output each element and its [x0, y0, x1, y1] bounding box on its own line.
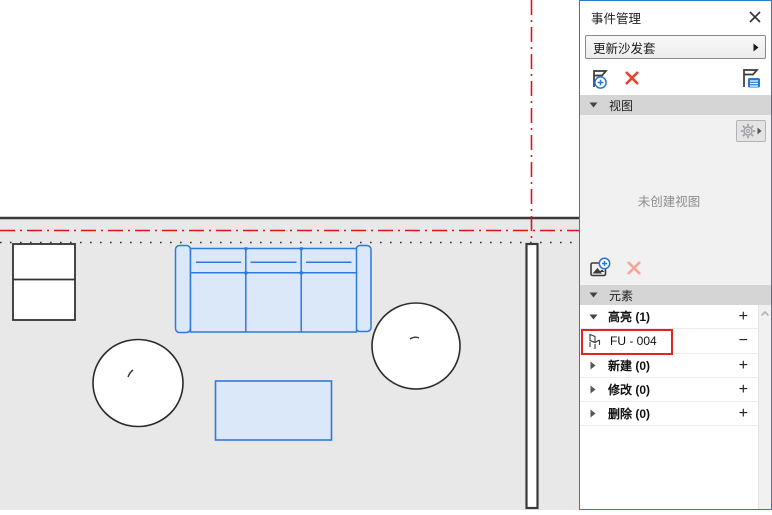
add-event-icon[interactable]: [589, 67, 611, 90]
gear-icon: [740, 123, 756, 139]
view-settings-button[interactable]: [736, 120, 766, 142]
expand-triangle-icon[interactable]: [586, 409, 600, 418]
group-row-modify[interactable]: 修改 (0) +: [580, 378, 758, 402]
close-icon[interactable]: [748, 10, 762, 24]
add-view-icon[interactable]: [589, 257, 613, 279]
element-section-header[interactable]: 元素: [580, 285, 771, 305]
event-details-icon[interactable]: [740, 67, 762, 90]
event-selector[interactable]: 更新沙发套: [585, 35, 766, 59]
flyout-arrow-icon: [757, 127, 762, 135]
group-label: 修改 (0): [608, 381, 739, 398]
chair-icon: [586, 333, 602, 350]
delete-view-icon[interactable]: [626, 260, 642, 276]
element-row-fu-004[interactable]: FU - 004 −: [580, 329, 758, 354]
delete-event-icon[interactable]: [624, 70, 640, 86]
right-wall[interactable]: [527, 244, 538, 508]
collapse-triangle-icon[interactable]: [586, 314, 600, 320]
view-section-label: 视图: [609, 97, 633, 114]
expand-triangle-icon[interactable]: [586, 385, 600, 394]
group-label: 删除 (0): [608, 405, 739, 422]
add-element-button[interactable]: +: [739, 406, 748, 422]
expand-triangle-icon[interactable]: [586, 361, 600, 370]
round-table-left[interactable]: [93, 340, 183, 427]
view-section-header[interactable]: 视图: [580, 95, 771, 115]
group-label: 新建 (0): [608, 357, 739, 374]
view-empty-text: 未创建视图: [580, 191, 758, 210]
exterior-area: [0, 0, 579, 219]
event-toolbar: [580, 61, 771, 95]
panel-title: 事件管理: [591, 8, 641, 27]
cabinet[interactable]: [13, 244, 75, 320]
add-element-button[interactable]: +: [739, 358, 748, 374]
collapse-triangle-icon: [589, 292, 598, 298]
add-element-button[interactable]: +: [739, 309, 748, 325]
element-section-label: 元素: [609, 287, 633, 304]
sofa-selected[interactable]: [176, 246, 372, 333]
dropdown-arrow-icon: [753, 43, 759, 52]
event-selector-value: 更新沙发套: [593, 38, 656, 57]
collapse-triangle-icon: [589, 102, 598, 108]
view-toolbar: [589, 253, 642, 283]
group-label: 高亮 (1): [608, 308, 739, 325]
coffee-table-selected[interactable]: [216, 381, 332, 440]
scroll-up-icon[interactable]: [760, 310, 770, 317]
add-element-button[interactable]: +: [739, 382, 748, 398]
round-table-right[interactable]: [372, 303, 460, 389]
group-row-delete[interactable]: 删除 (0) +: [580, 402, 758, 426]
event-manager-panel: 事件管理 更新沙发套: [579, 0, 772, 510]
element-list: 高亮 (1) + FU - 004 −: [580, 305, 771, 509]
list-scrollbar[interactable]: [758, 305, 771, 509]
drawing-canvas[interactable]: [0, 0, 579, 510]
group-row-new[interactable]: 新建 (0) +: [580, 354, 758, 378]
panel-title-bar: 事件管理: [580, 1, 771, 33]
group-row-highlight[interactable]: 高亮 (1) +: [580, 305, 758, 329]
event-selector-row: 更新沙发套: [580, 33, 771, 61]
view-section-body: 未创建视图: [580, 115, 771, 285]
element-label: FU - 004: [610, 334, 739, 348]
remove-element-button[interactable]: −: [739, 333, 748, 349]
